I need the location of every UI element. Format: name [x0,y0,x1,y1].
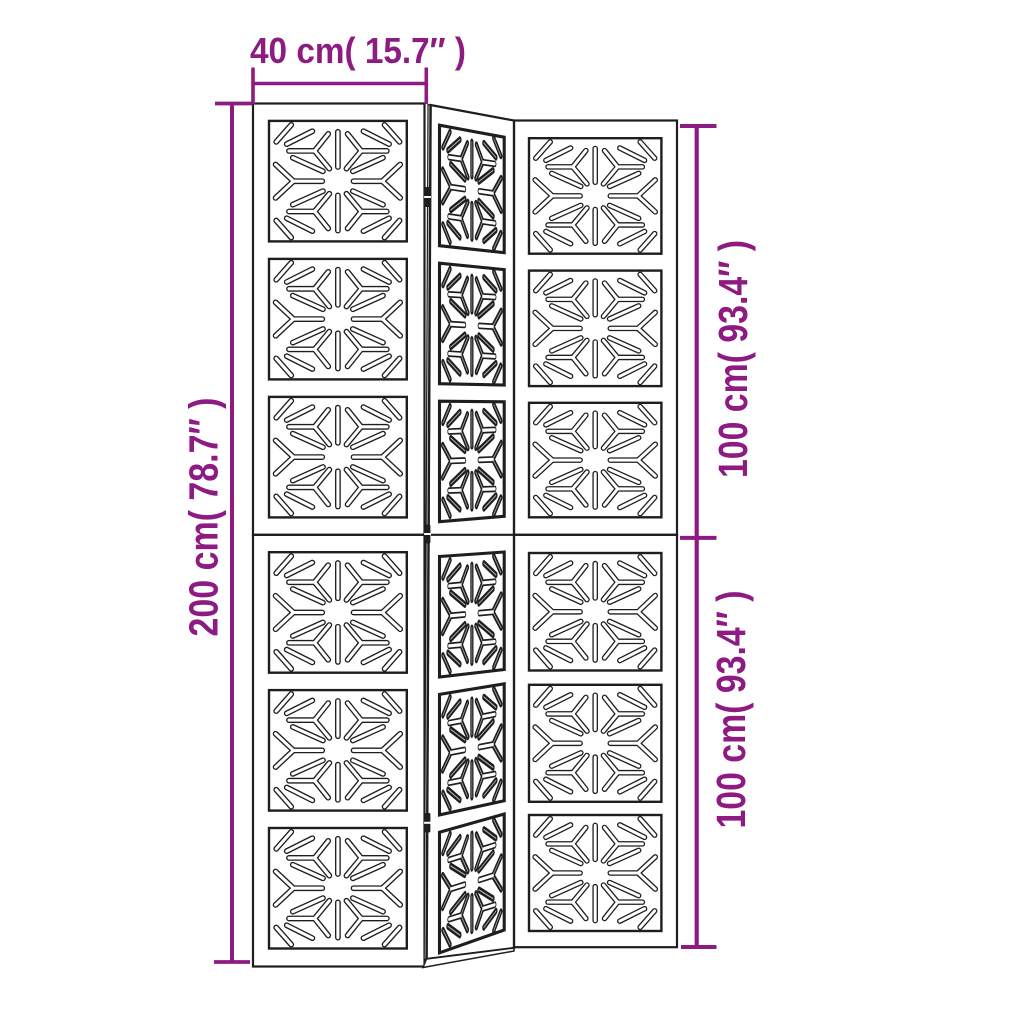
svg-text:200 cm( 78.7″ ): 200 cm( 78.7″ ) [180,398,226,637]
svg-text:40 cm( 15.7″ ): 40 cm( 15.7″ ) [250,30,466,71]
svg-text:100 cm( 93.4″ ): 100 cm( 93.4″ ) [710,240,756,478]
svg-text:100 cm( 93.4″ ): 100 cm( 93.4″ ) [708,591,754,829]
